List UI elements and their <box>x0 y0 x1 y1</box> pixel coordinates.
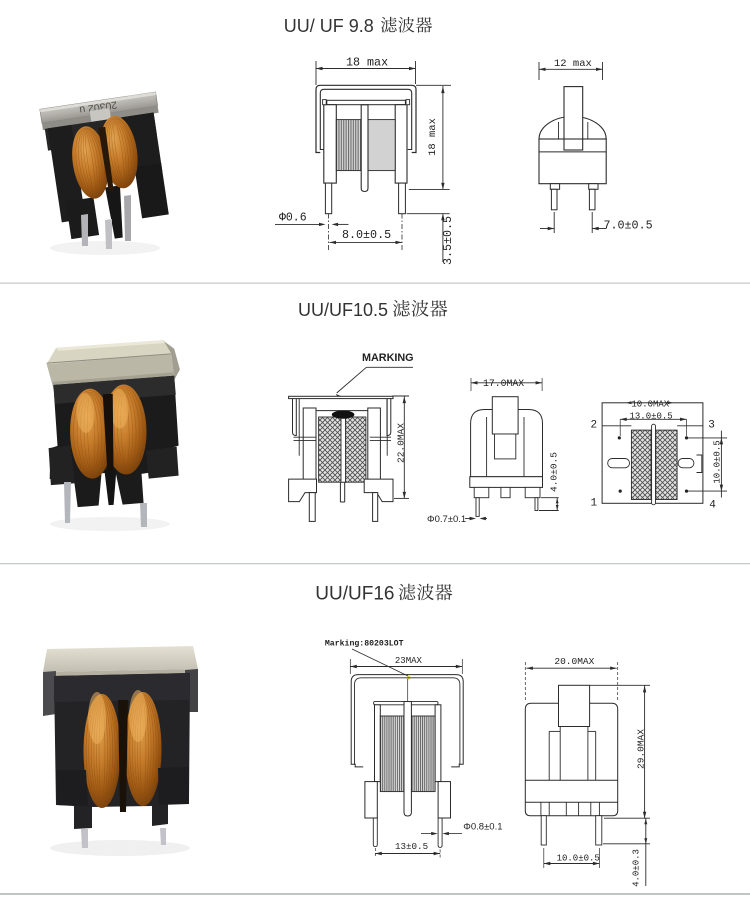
svg-text:10.0±0.5: 10.0±0.5 <box>557 853 600 863</box>
svg-text:10.0±0.5: 10.0±0.5 <box>713 440 723 483</box>
svg-text:22.0MAX: 22.0MAX <box>396 423 407 463</box>
svg-text:MARKING: MARKING <box>362 352 414 364</box>
svg-text:2: 2 <box>591 419 598 431</box>
svg-text:18 max: 18 max <box>427 118 439 156</box>
svg-text:29.0MAX: 29.0MAX <box>635 729 646 769</box>
svg-text:13.0±0.5: 13.0±0.5 <box>630 411 673 421</box>
svg-text:13±0.5: 13±0.5 <box>395 841 428 852</box>
svg-text:UU/UF10.5: UU/UF10.5 <box>298 300 388 320</box>
svg-text:18 max: 18 max <box>346 56 388 70</box>
svg-text:4.0±0.3: 4.0±0.3 <box>632 849 642 887</box>
svg-text:4.0±0.5: 4.0±0.5 <box>548 452 559 492</box>
svg-text:12 max: 12 max <box>554 58 592 70</box>
svg-text:Marking:80203LOT: Marking:80203LOT <box>325 639 404 649</box>
svg-text:1: 1 <box>591 497 598 509</box>
svg-text:8.0±0.5: 8.0±0.5 <box>342 228 391 242</box>
svg-text:7.0±0.5: 7.0±0.5 <box>604 218 653 232</box>
svg-text:Φ0.6: Φ0.6 <box>279 212 307 225</box>
svg-text:23MAX: 23MAX <box>395 656 423 666</box>
svg-text:UU/ UF 9.8: UU/ UF 9.8 <box>284 16 374 36</box>
svg-text:Φ0.7±0.1: Φ0.7±0.1 <box>427 514 466 525</box>
svg-text:Φ0.8±0.1: Φ0.8±0.1 <box>463 822 502 833</box>
svg-text:10.0MAX: 10.0MAX <box>631 400 669 410</box>
svg-text:20.0MAX: 20.0MAX <box>554 656 594 667</box>
svg-text:3: 3 <box>708 419 715 431</box>
svg-text:17.0MAX: 17.0MAX <box>483 378 524 389</box>
svg-text:3.5±0.5: 3.5±0.5 <box>441 216 455 265</box>
svg-text:UU/UF16: UU/UF16 <box>315 583 394 604</box>
svg-text:4: 4 <box>709 500 716 512</box>
